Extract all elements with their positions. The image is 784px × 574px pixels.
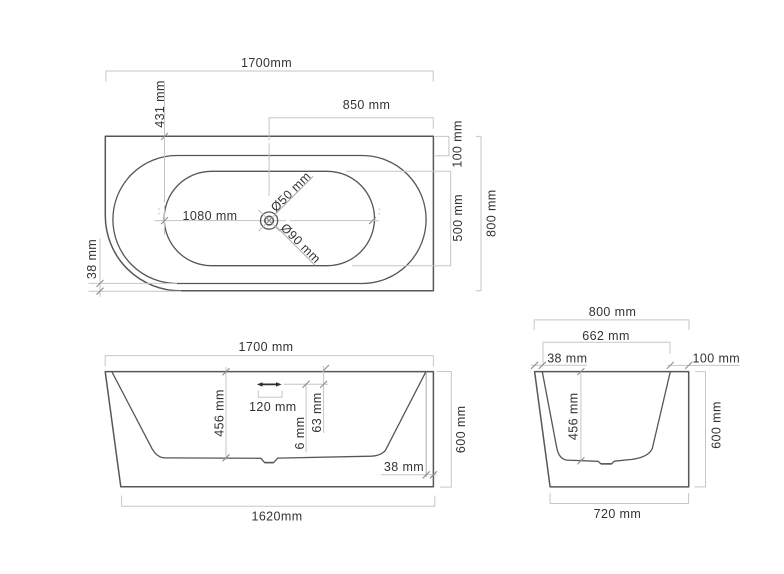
svg-text:456 mm: 456 mm [213, 389, 227, 437]
svg-text:662 mm: 662 mm [582, 329, 630, 343]
svg-text:38 mm: 38 mm [85, 239, 99, 279]
svg-text:63 mm: 63 mm [310, 392, 324, 432]
svg-text:1700mm: 1700mm [241, 56, 292, 70]
svg-text:1080 mm: 1080 mm [183, 209, 238, 223]
svg-text:600 mm: 600 mm [454, 406, 468, 454]
svg-text:431 mm: 431 mm [153, 80, 167, 128]
svg-text:38 mm: 38 mm [547, 351, 587, 365]
svg-text:120 mm: 120 mm [249, 400, 297, 414]
svg-text:6 mm: 6 mm [293, 417, 307, 450]
svg-text:800 mm: 800 mm [485, 189, 499, 237]
svg-text:850 mm: 850 mm [343, 98, 391, 112]
svg-text:1700 mm: 1700 mm [239, 340, 294, 354]
svg-text:500 mm: 500 mm [451, 194, 465, 242]
svg-text:800 mm: 800 mm [589, 305, 637, 319]
svg-text:100 mm: 100 mm [451, 120, 465, 168]
svg-text:100 mm: 100 mm [693, 351, 741, 365]
svg-text:720 mm: 720 mm [594, 507, 642, 521]
svg-text:456 mm: 456 mm [567, 393, 581, 441]
svg-text:1620mm: 1620mm [251, 510, 302, 524]
svg-text:600 mm: 600 mm [710, 401, 724, 449]
svg-text:38 mm: 38 mm [384, 460, 424, 474]
